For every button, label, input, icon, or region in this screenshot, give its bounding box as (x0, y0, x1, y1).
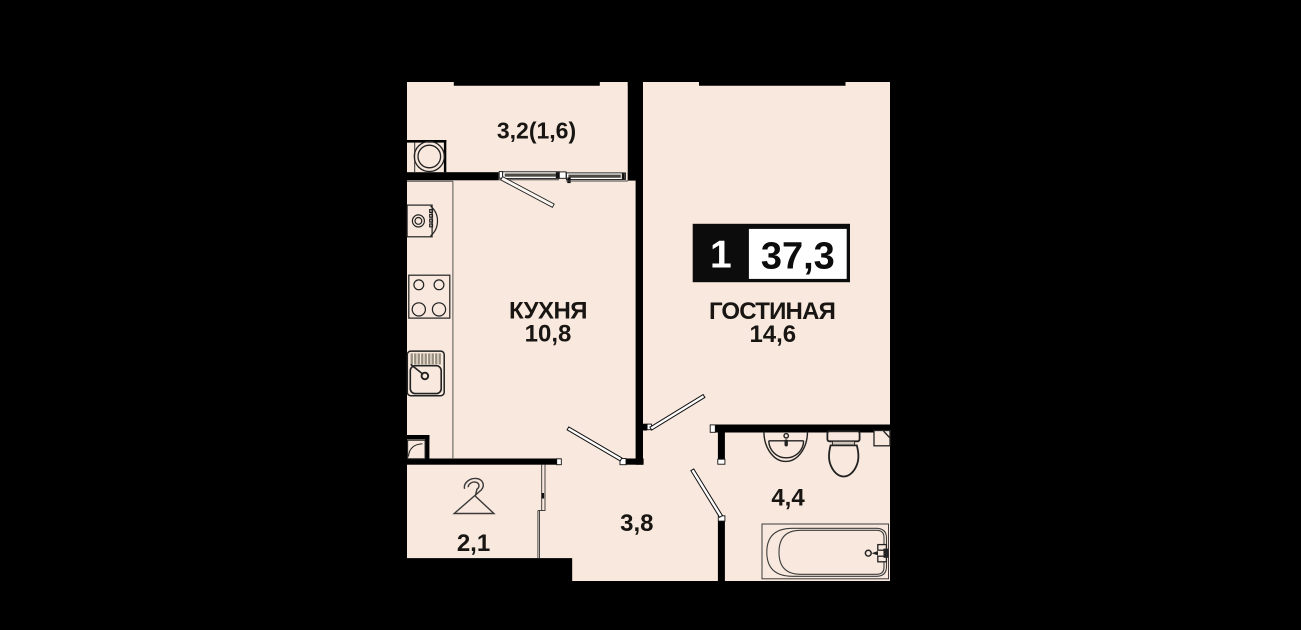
svg-text:3,2(1,6): 3,2(1,6) (497, 118, 576, 144)
svg-text:4,4: 4,4 (771, 485, 805, 512)
svg-text:1: 1 (710, 234, 732, 277)
svg-text:3,8: 3,8 (620, 510, 653, 537)
svg-text:14,6: 14,6 (749, 321, 796, 348)
svg-text:37,3: 37,3 (761, 236, 835, 278)
svg-text:2,1: 2,1 (457, 530, 490, 557)
svg-text:10,8: 10,8 (525, 320, 572, 347)
